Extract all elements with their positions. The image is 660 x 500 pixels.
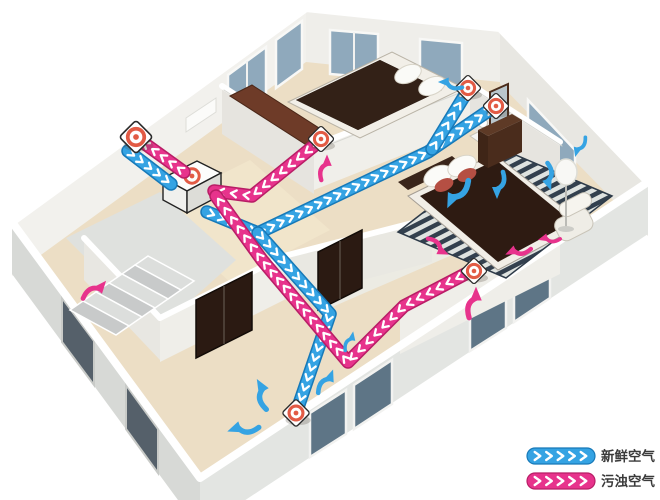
legend-label: 污浊空气 [601, 473, 655, 490]
vent-dot-icon [466, 86, 471, 91]
house-cutaway-svg: 新鲜空气污浊空气 [0, 0, 660, 500]
vent-dot-icon [294, 411, 299, 416]
legend-label: 新鲜空气 [601, 448, 655, 465]
legend-item-exhaust: 污浊空气 [527, 473, 655, 490]
vent-dot-icon [472, 269, 477, 274]
vent-dot-icon [133, 134, 139, 140]
legend: 新鲜空气污浊空气 [527, 448, 655, 490]
ventilation-system-illustration: 新鲜空气污浊空气 [0, 0, 660, 500]
vent-dot-icon [319, 137, 324, 142]
vent-dot-icon [494, 104, 499, 109]
legend-item-fresh: 新鲜空气 [527, 448, 655, 465]
